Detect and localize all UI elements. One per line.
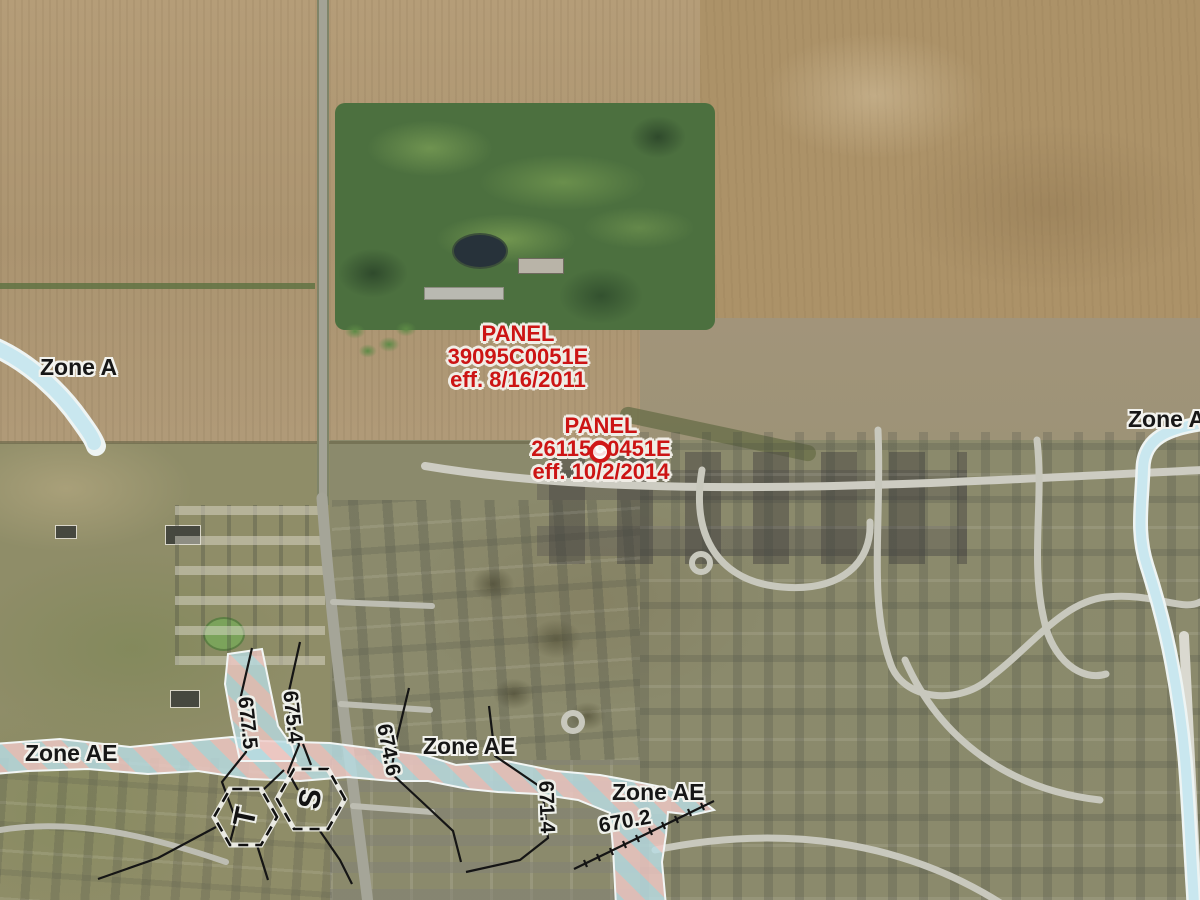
zone-ae-floodplain bbox=[0, 649, 714, 900]
panel-title: PANEL bbox=[440, 322, 596, 345]
zone-a-stream-east bbox=[1140, 423, 1200, 900]
location-ring-marker bbox=[589, 441, 611, 463]
zone-ae-label-east: Zone AE bbox=[612, 779, 704, 806]
flood-map-canvas[interactable]: Zone A Zone A Zone AE Zone AE Zone AE PA… bbox=[0, 0, 1200, 900]
panel-number: 39095C0051E bbox=[440, 345, 596, 368]
firm-panel-annotation-ohio: PANEL 39095C0051E eff. 8/16/2011 bbox=[440, 322, 596, 391]
zone-ae-label-west: Zone AE bbox=[25, 740, 117, 767]
panel-effective: eff. 8/16/2011 bbox=[440, 368, 596, 391]
panel-title: PANEL bbox=[527, 414, 675, 437]
zone-ae-label-center: Zone AE bbox=[423, 733, 515, 760]
zone-a-label-west: Zone A bbox=[40, 354, 117, 381]
bfe-label: 671.4 bbox=[533, 780, 559, 833]
zone-a-label-east: Zone A bbox=[1128, 406, 1200, 433]
panel-effective: eff. 10/2/2014 bbox=[527, 460, 675, 483]
